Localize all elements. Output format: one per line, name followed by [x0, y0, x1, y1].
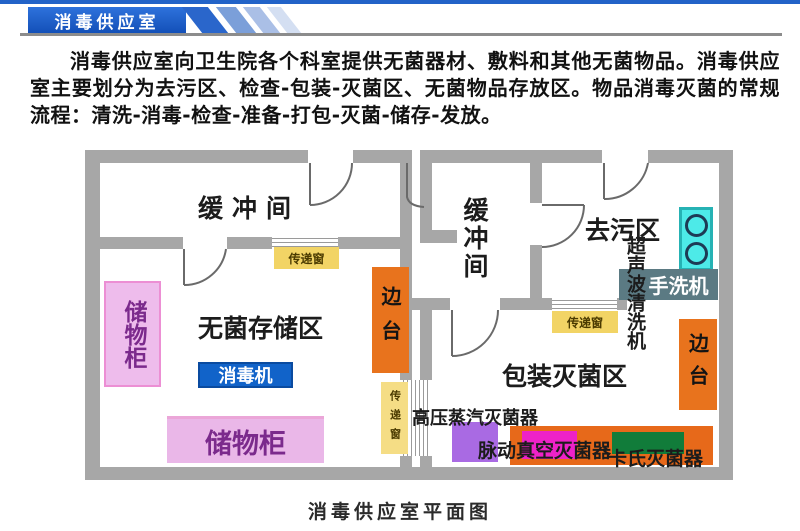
room-label-buffer-middle: 缓冲间 [462, 197, 487, 281]
side-table-left-label: 边台 [376, 286, 405, 354]
door-buffer-left-top [310, 163, 352, 205]
pass-window-buffer-left-label: 传递窗 [288, 250, 324, 267]
storage-cabinet-bottom: 储物柜 [167, 416, 324, 463]
pass-window-packing: 传递窗 [552, 311, 618, 333]
high-pressure-sterilizer-label: 高压蒸汽灭菌器 [412, 404, 538, 430]
pass-window-buffer-left: 传递窗 [274, 247, 339, 269]
side-table-right: 边台 [679, 319, 717, 410]
pass-window-center-label: 传递窗 [387, 390, 403, 447]
pass-window-center: 传递窗 [381, 382, 408, 454]
side-table-right-label: 边台 [684, 333, 713, 397]
room-label-decontamination: 去污区 [585, 211, 660, 247]
storage-cabinet-bottom-label: 储物柜 [205, 422, 286, 461]
hand-washer-label: 手洗机 [649, 270, 709, 299]
cassette-sterilizer-label: 卡氏灭菌器 [608, 444, 703, 471]
pass-window-packing-label: 传递窗 [567, 314, 603, 331]
door-gap-top [407, 163, 424, 207]
door-buffer-middle-right [542, 205, 584, 247]
basin-circle-top [685, 214, 708, 237]
basin-circle-bottom [685, 242, 708, 265]
disinfector-label: 消毒机 [219, 362, 273, 388]
side-table-left: 边台 [372, 267, 409, 373]
storage-cabinet-left: 储物柜 [104, 281, 161, 387]
disinfector-machine: 消毒机 [198, 362, 293, 388]
room-label-sterile-storage: 无菌存储区 [198, 309, 323, 345]
door-decontamination-top [604, 163, 648, 199]
ultrasonic-cleaner-label: 超声波清洗机 [625, 236, 644, 350]
plan-caption: 消毒供应室平面图 [0, 497, 800, 524]
ultrasonic-cleaner-basin [679, 207, 713, 271]
room-label-packing-sterilization: 包装灭菌区 [502, 357, 627, 393]
room-label-buffer-left: 缓冲间 [198, 189, 300, 225]
storage-cabinet-left-label: 储物柜 [121, 300, 144, 369]
door-buffer-left-bottom [184, 249, 226, 285]
pulse-vacuum-sterilizer-label: 脉动真空灭菌器 [478, 436, 611, 463]
door-buffer-middle-bottom [452, 310, 498, 356]
